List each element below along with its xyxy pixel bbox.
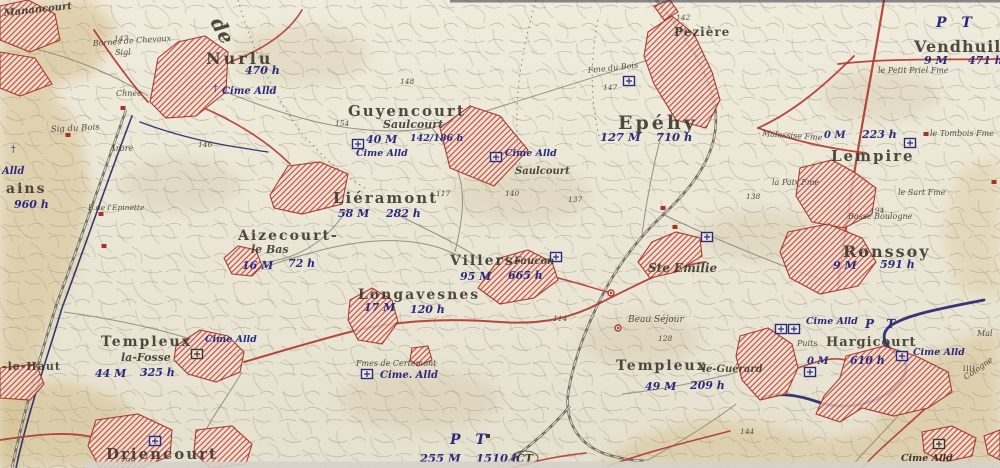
cross-nurlu: † xyxy=(213,84,218,94)
label-spot-140: 140 xyxy=(505,189,520,198)
label-longavesnes-pop: 120 h xyxy=(410,303,445,316)
label-lieramont: Liéramont xyxy=(333,189,438,207)
mark-sart xyxy=(992,180,997,184)
label-guyencourt-m: 40 M xyxy=(366,133,398,146)
label-aizecourt-m: 16 M xyxy=(242,259,274,272)
label-spot-138: 138 xyxy=(746,192,761,201)
label-villers-pop: 665 h xyxy=(508,269,543,282)
cemetery-saulcourt-e xyxy=(491,153,502,162)
cemetery-hargicourt-d xyxy=(805,368,816,377)
cross-nurlu-glyph: † xyxy=(213,84,218,94)
label-ronssoy-pop: 591 h xyxy=(880,258,915,271)
farm-nurlu-s-mark xyxy=(121,106,126,110)
mark-tombois-mark xyxy=(924,132,929,136)
label-vendhuile-pop: 471 h xyxy=(968,54,1000,67)
label-hargicourt: Hargicourt xyxy=(826,335,916,350)
label-malassise-m: 0 M xyxy=(824,130,846,141)
farm-rail-a xyxy=(661,206,666,210)
label-aizecourt: Aizecourt- xyxy=(237,228,339,244)
label-guerard-m: 49 M xyxy=(645,380,677,393)
label-aizecourt-lehaut: -le-Haut xyxy=(2,360,61,373)
label-pt-hargicourt: P T xyxy=(864,317,899,331)
cross-moislains: † xyxy=(11,145,16,155)
label-fosse-pop: 325 h xyxy=(140,366,175,379)
label-spot-154: 154 xyxy=(335,119,350,128)
label-longavesnes-m: 17 M xyxy=(364,301,396,314)
label-epehy-m: 127 M xyxy=(600,130,642,144)
photo-edge-top xyxy=(450,0,1000,3)
cemetery-fosse xyxy=(192,350,203,359)
label-moislains-cim: Alld xyxy=(1,166,24,177)
cemetery-hargicourt-c xyxy=(897,352,908,361)
label-chnee: Chnée xyxy=(116,89,142,98)
label-villers-faucon: Faucon xyxy=(513,256,554,267)
cemetery-hargicourt-b xyxy=(789,325,800,334)
label-hargicourt-cim2: Cime Alld xyxy=(913,347,965,358)
label-fosse-m: 44 M xyxy=(95,367,127,380)
label-tombois: le Tombois Fme xyxy=(930,129,994,138)
label-epinette: B.de l'Epinette xyxy=(87,203,145,212)
map-canvas: ††llll ManancourtdeNurluGuyencourtSaulco… xyxy=(0,0,1000,468)
label-arbre: Arbre xyxy=(109,144,134,153)
label-guyencourt-cim2: Cime Alld xyxy=(505,148,557,159)
label-nurlu-pop: 470 h xyxy=(245,64,280,77)
label-spot-147b: 147 xyxy=(603,83,618,92)
farm-nurlu-s xyxy=(121,106,126,110)
label-aizecourt-lebas: le Bas xyxy=(251,243,289,256)
label-templeux-fosse-2: la-Fosse xyxy=(121,351,171,364)
label-vendhuile-m: 9 M xyxy=(924,54,948,67)
label-spot-144: 144 xyxy=(740,427,755,436)
label-sart: le Sart Fme xyxy=(898,188,946,197)
label-saulcourt-2: Saulcourt xyxy=(515,166,570,177)
station-south xyxy=(615,325,621,331)
station-south-dot xyxy=(617,327,619,329)
label-guyencourt-cim1: Cime Alld xyxy=(356,148,408,159)
cemetery-village-br xyxy=(934,440,945,449)
label-hargicourt-cim1: Cime Alld xyxy=(806,316,858,327)
label-guyencourt-pop: 142/186 h xyxy=(410,133,463,144)
label-peziere: Pezière xyxy=(674,25,730,39)
label-hargicourt-m: 0 M xyxy=(807,356,829,367)
mark-sart-mark xyxy=(992,180,997,184)
label-epehy-pop: 710 h xyxy=(656,130,692,144)
hamlet-epinette-b xyxy=(102,244,107,248)
label-ronssoy-m: 9 M xyxy=(833,259,857,272)
label-templeux-guerard-1: Templeux xyxy=(616,358,707,374)
cross-moislains-glyph: † xyxy=(11,145,16,155)
label-hargicourt-pop: 610 h xyxy=(850,354,885,367)
mark-tombois xyxy=(924,132,929,136)
label-aizecourt-pop: 72 h xyxy=(288,257,315,270)
station-ste-emilie-dot xyxy=(610,292,612,294)
label-sigl: Sigl xyxy=(115,48,131,57)
label-spot-128: 128 xyxy=(658,334,673,343)
label-villers: Villers- xyxy=(449,253,523,269)
label-moislains-partial: ains xyxy=(6,181,46,197)
label-pt-bottom: P T xyxy=(449,432,491,448)
farm-rail-a-mark xyxy=(661,206,666,210)
label-ste-emilie: Ste Emilie xyxy=(648,261,718,275)
label-lieramont-m: 58 M xyxy=(338,207,370,220)
label-lempire-pop: 223 h xyxy=(861,128,897,141)
label-spot-114: 114 xyxy=(553,314,568,323)
label-certemont: Fmes de Certemont xyxy=(355,359,437,368)
label-puits: Puits xyxy=(796,339,817,348)
map-screenshot: ††llll ManancourtdeNurluGuyencourtSaulco… xyxy=(0,0,1000,468)
label-la-paix: la Paix Fme xyxy=(772,178,819,187)
farm-rail-b xyxy=(673,225,678,229)
hamlet-epinette-b-mark xyxy=(102,244,107,248)
farm-rail-b-mark xyxy=(673,225,678,229)
cemetery-ste-emilie xyxy=(702,233,713,242)
cemetery-epehy xyxy=(624,77,635,86)
label-lempire: Lempire xyxy=(831,147,915,165)
label-guerard-pop: 209 h xyxy=(689,379,725,392)
cemetery-hargicourt-a xyxy=(776,325,787,334)
label-nurlu-cim: Cime Alld xyxy=(222,86,277,97)
hamlet-epinette-a-mark xyxy=(99,212,104,216)
label-pt-vendhuile: P T xyxy=(935,15,977,31)
label-spot-117: 117 xyxy=(436,189,451,198)
cemetery-certemont xyxy=(362,370,373,379)
label-templeux-guerard-2: -le-Guérard xyxy=(698,364,763,375)
hamlet-epinette-a xyxy=(99,212,104,216)
label-spot-137: 137 xyxy=(568,195,583,204)
label-spot-194: 194 xyxy=(870,206,885,215)
photo-edge-bottom xyxy=(85,462,1000,468)
label-fosse-cim: Cime Alld xyxy=(205,334,257,345)
label-beau-sejour: Beau Séjour xyxy=(627,314,684,325)
label-spot-146: 146 xyxy=(198,140,213,149)
label-moislains-pop: 960 h xyxy=(14,198,49,211)
label-templeux-fosse-1: Templeux xyxy=(101,334,192,350)
label-mal-partial: Mal xyxy=(976,329,993,338)
label-spot-148: 148 xyxy=(400,77,415,86)
label-petit-priel: le Petit Priel Fme xyxy=(878,66,949,75)
label-spot-147a: 147 xyxy=(114,34,129,43)
station-ste-emilie xyxy=(608,290,614,296)
label-spot-142: 142 xyxy=(676,13,691,22)
label-lieramont-pop: 282 h xyxy=(385,207,421,220)
label-villers-m: 95 M xyxy=(460,270,492,283)
label-certemont-cim: Cime. Alld xyxy=(380,370,438,381)
label-saulcourt-1: Saulcourt xyxy=(383,118,443,131)
